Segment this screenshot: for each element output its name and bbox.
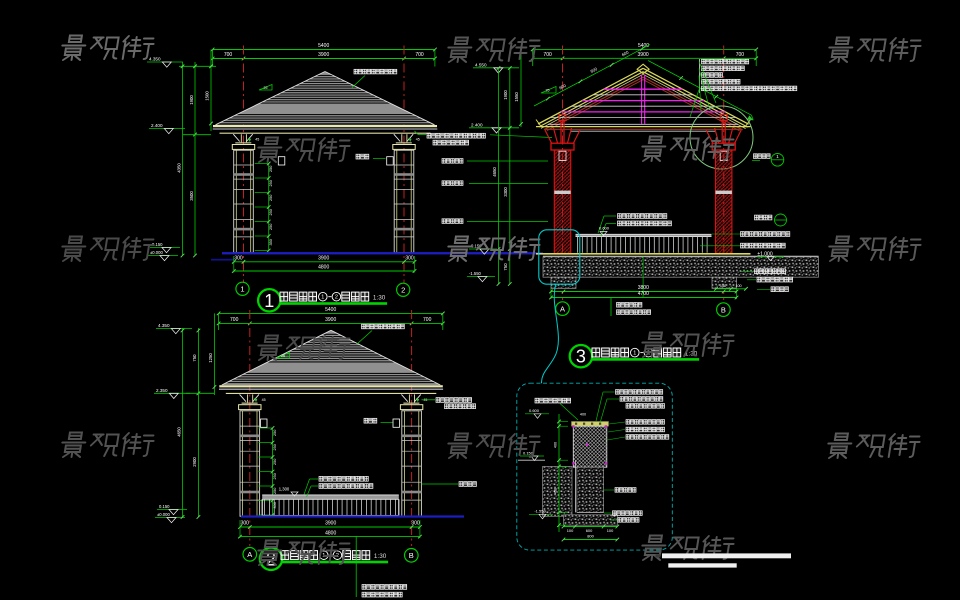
svg-text:700: 700 xyxy=(415,52,424,58)
svg-text:3: 3 xyxy=(576,347,586,367)
svg-text:0.600: 0.600 xyxy=(599,226,610,231)
svg-text:4350: 4350 xyxy=(177,163,182,173)
svg-text:1: 1 xyxy=(633,351,636,357)
svg-text:800: 800 xyxy=(587,534,594,539)
svg-text:1550: 1550 xyxy=(514,92,519,102)
svg-text:±0.000: ±0.000 xyxy=(157,512,170,517)
svg-text:1,300: 1,300 xyxy=(279,487,290,492)
svg-text:1: 1 xyxy=(240,285,244,294)
svg-text:A: A xyxy=(247,550,252,559)
svg-text:3300: 3300 xyxy=(503,187,508,197)
svg-text:100: 100 xyxy=(567,528,574,533)
svg-text:700: 700 xyxy=(224,52,233,58)
svg-text:250: 250 xyxy=(269,195,273,201)
svg-text:700: 700 xyxy=(230,317,239,323)
svg-text:B: B xyxy=(409,551,414,560)
svg-text:100: 100 xyxy=(607,528,614,533)
svg-text:1: 1 xyxy=(264,291,274,311)
svg-text:250: 250 xyxy=(273,430,277,436)
svg-text:45: 45 xyxy=(416,138,420,142)
svg-text:300: 300 xyxy=(234,256,243,262)
svg-text:1900: 1900 xyxy=(503,90,508,100)
svg-text:3900: 3900 xyxy=(325,521,336,527)
svg-text:1250: 1250 xyxy=(208,353,213,363)
svg-text:2: 2 xyxy=(401,286,405,295)
svg-text:4.350: 4.350 xyxy=(158,323,170,328)
svg-text:3900: 3900 xyxy=(318,52,329,58)
svg-text:2.400: 2.400 xyxy=(151,123,163,128)
svg-text:4650: 4650 xyxy=(177,427,182,437)
svg-text:0.150: 0.150 xyxy=(159,504,170,509)
svg-text:A: A xyxy=(560,304,565,313)
svg-text:450: 450 xyxy=(554,488,558,494)
svg-text:400: 400 xyxy=(554,442,558,448)
svg-text:3900: 3900 xyxy=(638,52,649,58)
svg-text:250: 250 xyxy=(273,459,277,465)
svg-text:400: 400 xyxy=(580,413,586,417)
svg-text:4650: 4650 xyxy=(492,167,497,177)
svg-text:2: 2 xyxy=(335,295,338,301)
svg-text:4700: 4700 xyxy=(638,291,649,297)
svg-text:5400: 5400 xyxy=(325,307,336,313)
svg-text:250: 250 xyxy=(269,180,273,186)
svg-text:2.400: 2.400 xyxy=(471,122,483,127)
svg-text:350: 350 xyxy=(273,502,277,508)
svg-text:250: 250 xyxy=(273,444,277,450)
svg-text:25: 25 xyxy=(264,86,268,90)
svg-text:1:30: 1:30 xyxy=(374,553,387,560)
svg-text:250: 250 xyxy=(273,473,277,479)
svg-text:45: 45 xyxy=(255,138,259,142)
svg-text:1500: 1500 xyxy=(205,91,210,101)
svg-text:0.600: 0.600 xyxy=(529,408,540,413)
svg-text:700: 700 xyxy=(423,317,432,323)
svg-text:700: 700 xyxy=(736,52,745,58)
svg-text:4.550: 4.550 xyxy=(475,62,487,67)
svg-text:4800: 4800 xyxy=(318,265,329,271)
svg-text:300: 300 xyxy=(405,256,414,262)
svg-text:4.350: 4.350 xyxy=(149,57,161,62)
svg-text:250: 250 xyxy=(269,209,273,215)
svg-text:1:30: 1:30 xyxy=(373,295,386,302)
svg-text:45: 45 xyxy=(262,398,266,402)
svg-text:3900: 3900 xyxy=(325,317,336,323)
svg-text:350: 350 xyxy=(269,239,273,245)
svg-text:300: 300 xyxy=(241,521,250,527)
svg-text:-1.550: -1.550 xyxy=(469,271,482,276)
svg-text:B: B xyxy=(721,305,726,314)
svg-text:300: 300 xyxy=(411,521,420,527)
svg-text:750: 750 xyxy=(192,354,197,362)
svg-text:700: 700 xyxy=(543,52,552,58)
svg-text:5400: 5400 xyxy=(318,43,329,49)
svg-text:250: 250 xyxy=(269,224,273,230)
svg-text:1: 1 xyxy=(321,295,324,301)
svg-text:-1.550: -1.550 xyxy=(534,509,546,514)
svg-text:100: 100 xyxy=(735,284,741,288)
svg-text:150: 150 xyxy=(720,284,726,288)
svg-text:2.350: 2.350 xyxy=(156,388,168,393)
svg-text:±0.000: ±0.000 xyxy=(150,250,163,255)
svg-text:25: 25 xyxy=(281,354,285,358)
svg-text:250: 250 xyxy=(273,488,277,494)
svg-text:600: 600 xyxy=(586,528,593,533)
svg-text:750: 750 xyxy=(503,263,508,271)
svg-text:4800: 4800 xyxy=(325,530,336,536)
svg-text:25: 25 xyxy=(546,89,550,93)
svg-text:2900: 2900 xyxy=(192,457,197,467)
svg-text:250: 250 xyxy=(269,166,273,172)
svg-text:3900: 3900 xyxy=(318,256,329,262)
svg-text:1900: 1900 xyxy=(189,95,194,105)
svg-text:3500: 3500 xyxy=(189,191,194,201)
